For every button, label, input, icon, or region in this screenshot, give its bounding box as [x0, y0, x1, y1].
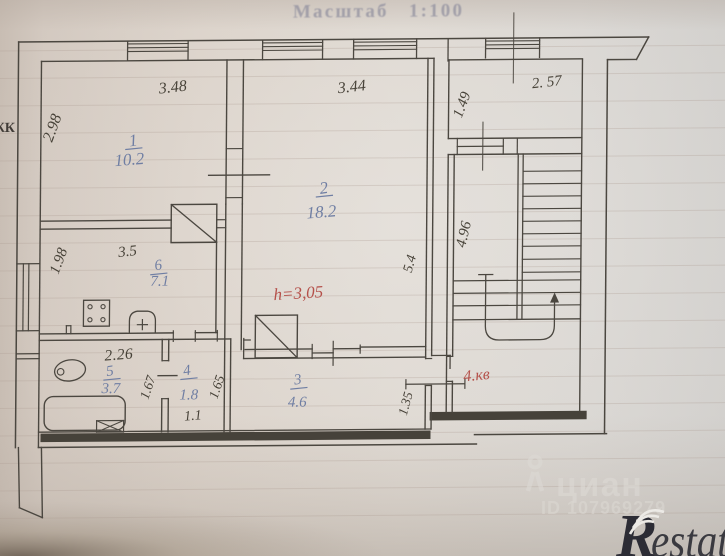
svg-text:18.2: 18.2 — [306, 201, 337, 222]
svg-text:3.5: 3.5 — [116, 243, 138, 261]
svg-text:3.7: 3.7 — [100, 381, 121, 397]
svg-text:1.1: 1.1 — [184, 408, 202, 424]
svg-text:2.26: 2.26 — [104, 345, 134, 364]
svg-text:3.48: 3.48 — [157, 78, 188, 98]
svg-text:4.6: 4.6 — [288, 395, 307, 411]
svg-text:7.1: 7.1 — [150, 274, 169, 290]
svg-text:3.44: 3.44 — [336, 77, 367, 97]
svg-text:Масштаб: Масштаб — [293, 1, 389, 23]
svg-text:estate: estate — [651, 514, 725, 556]
svg-text:10.2: 10.2 — [114, 149, 145, 170]
svg-text:ЖК: ЖК — [0, 121, 16, 136]
svg-text:1.8: 1.8 — [179, 387, 198, 403]
svg-text:h=3,05: h=3,05 — [273, 282, 324, 304]
svg-text:1:100: 1:100 — [409, 0, 464, 21]
svg-text:4.кв: 4.кв — [463, 366, 491, 385]
